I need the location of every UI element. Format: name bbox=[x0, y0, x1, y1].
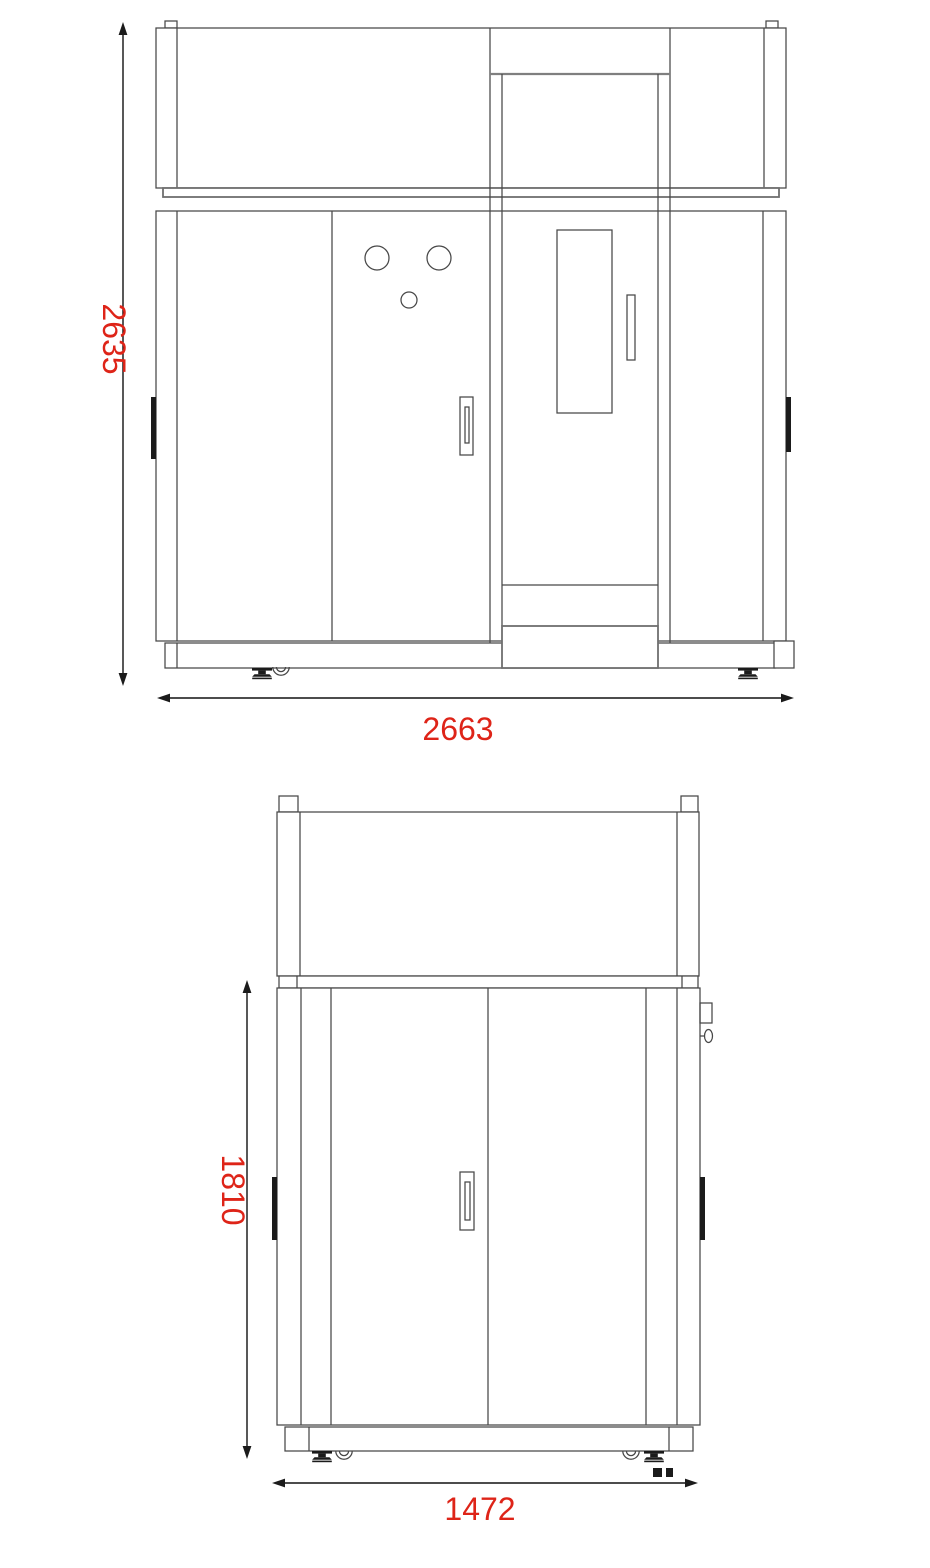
front-hood bbox=[156, 28, 786, 188]
technical-drawing-page: 2635 2663 bbox=[0, 0, 930, 1568]
side-view bbox=[272, 796, 713, 1477]
side-right-caster bbox=[623, 1451, 639, 1459]
arrowhead-right-icon bbox=[781, 694, 794, 703]
arrowhead-right-icon bbox=[685, 1479, 698, 1488]
side-left-edge-grip bbox=[272, 1177, 277, 1240]
arrowhead-up-icon bbox=[243, 980, 252, 993]
machine-dimension-drawing: 2635 2663 bbox=[0, 0, 930, 1568]
front-right-edge-grip bbox=[786, 397, 791, 452]
arrowhead-down-icon bbox=[243, 1446, 252, 1459]
side-hood bbox=[277, 812, 699, 976]
arrowhead-down-icon bbox=[119, 673, 128, 686]
front-base-right-block bbox=[774, 641, 794, 668]
side-top-left-tab bbox=[279, 796, 298, 812]
side-right-foot bbox=[644, 1451, 664, 1462]
side-mark-square-2 bbox=[666, 1468, 673, 1477]
side-left-caster bbox=[336, 1451, 352, 1459]
side-knob bbox=[705, 1030, 713, 1043]
front-main-body bbox=[156, 211, 786, 641]
side-height-label: 1810 bbox=[215, 1154, 251, 1225]
arrowhead-up-icon bbox=[119, 22, 128, 35]
side-left-foot bbox=[312, 1451, 332, 1462]
side-base-plinth bbox=[285, 1427, 693, 1451]
front-right-foot bbox=[738, 668, 758, 679]
side-right-edge-grip bbox=[700, 1177, 705, 1240]
side-width-label: 1472 bbox=[444, 1491, 515, 1527]
front-left-edge-grip bbox=[151, 397, 156, 459]
side-mark-square-1 bbox=[653, 1468, 662, 1477]
side-hinge-block bbox=[700, 1003, 712, 1023]
side-top-right-tab bbox=[681, 796, 698, 812]
arrowhead-left-icon bbox=[272, 1479, 285, 1488]
arrowhead-left-icon bbox=[157, 694, 170, 703]
front-height-label: 2635 bbox=[96, 303, 132, 374]
front-lip-strip bbox=[163, 188, 779, 197]
front-tower-bottom-panel bbox=[502, 626, 658, 668]
front-base-plinth bbox=[165, 643, 775, 668]
front-top-right-tab bbox=[766, 21, 778, 28]
front-width-label: 2663 bbox=[422, 711, 493, 747]
side-step-band bbox=[279, 976, 698, 988]
front-view bbox=[151, 21, 794, 679]
front-left-foot bbox=[252, 668, 272, 679]
front-top-left-tab bbox=[165, 21, 177, 28]
